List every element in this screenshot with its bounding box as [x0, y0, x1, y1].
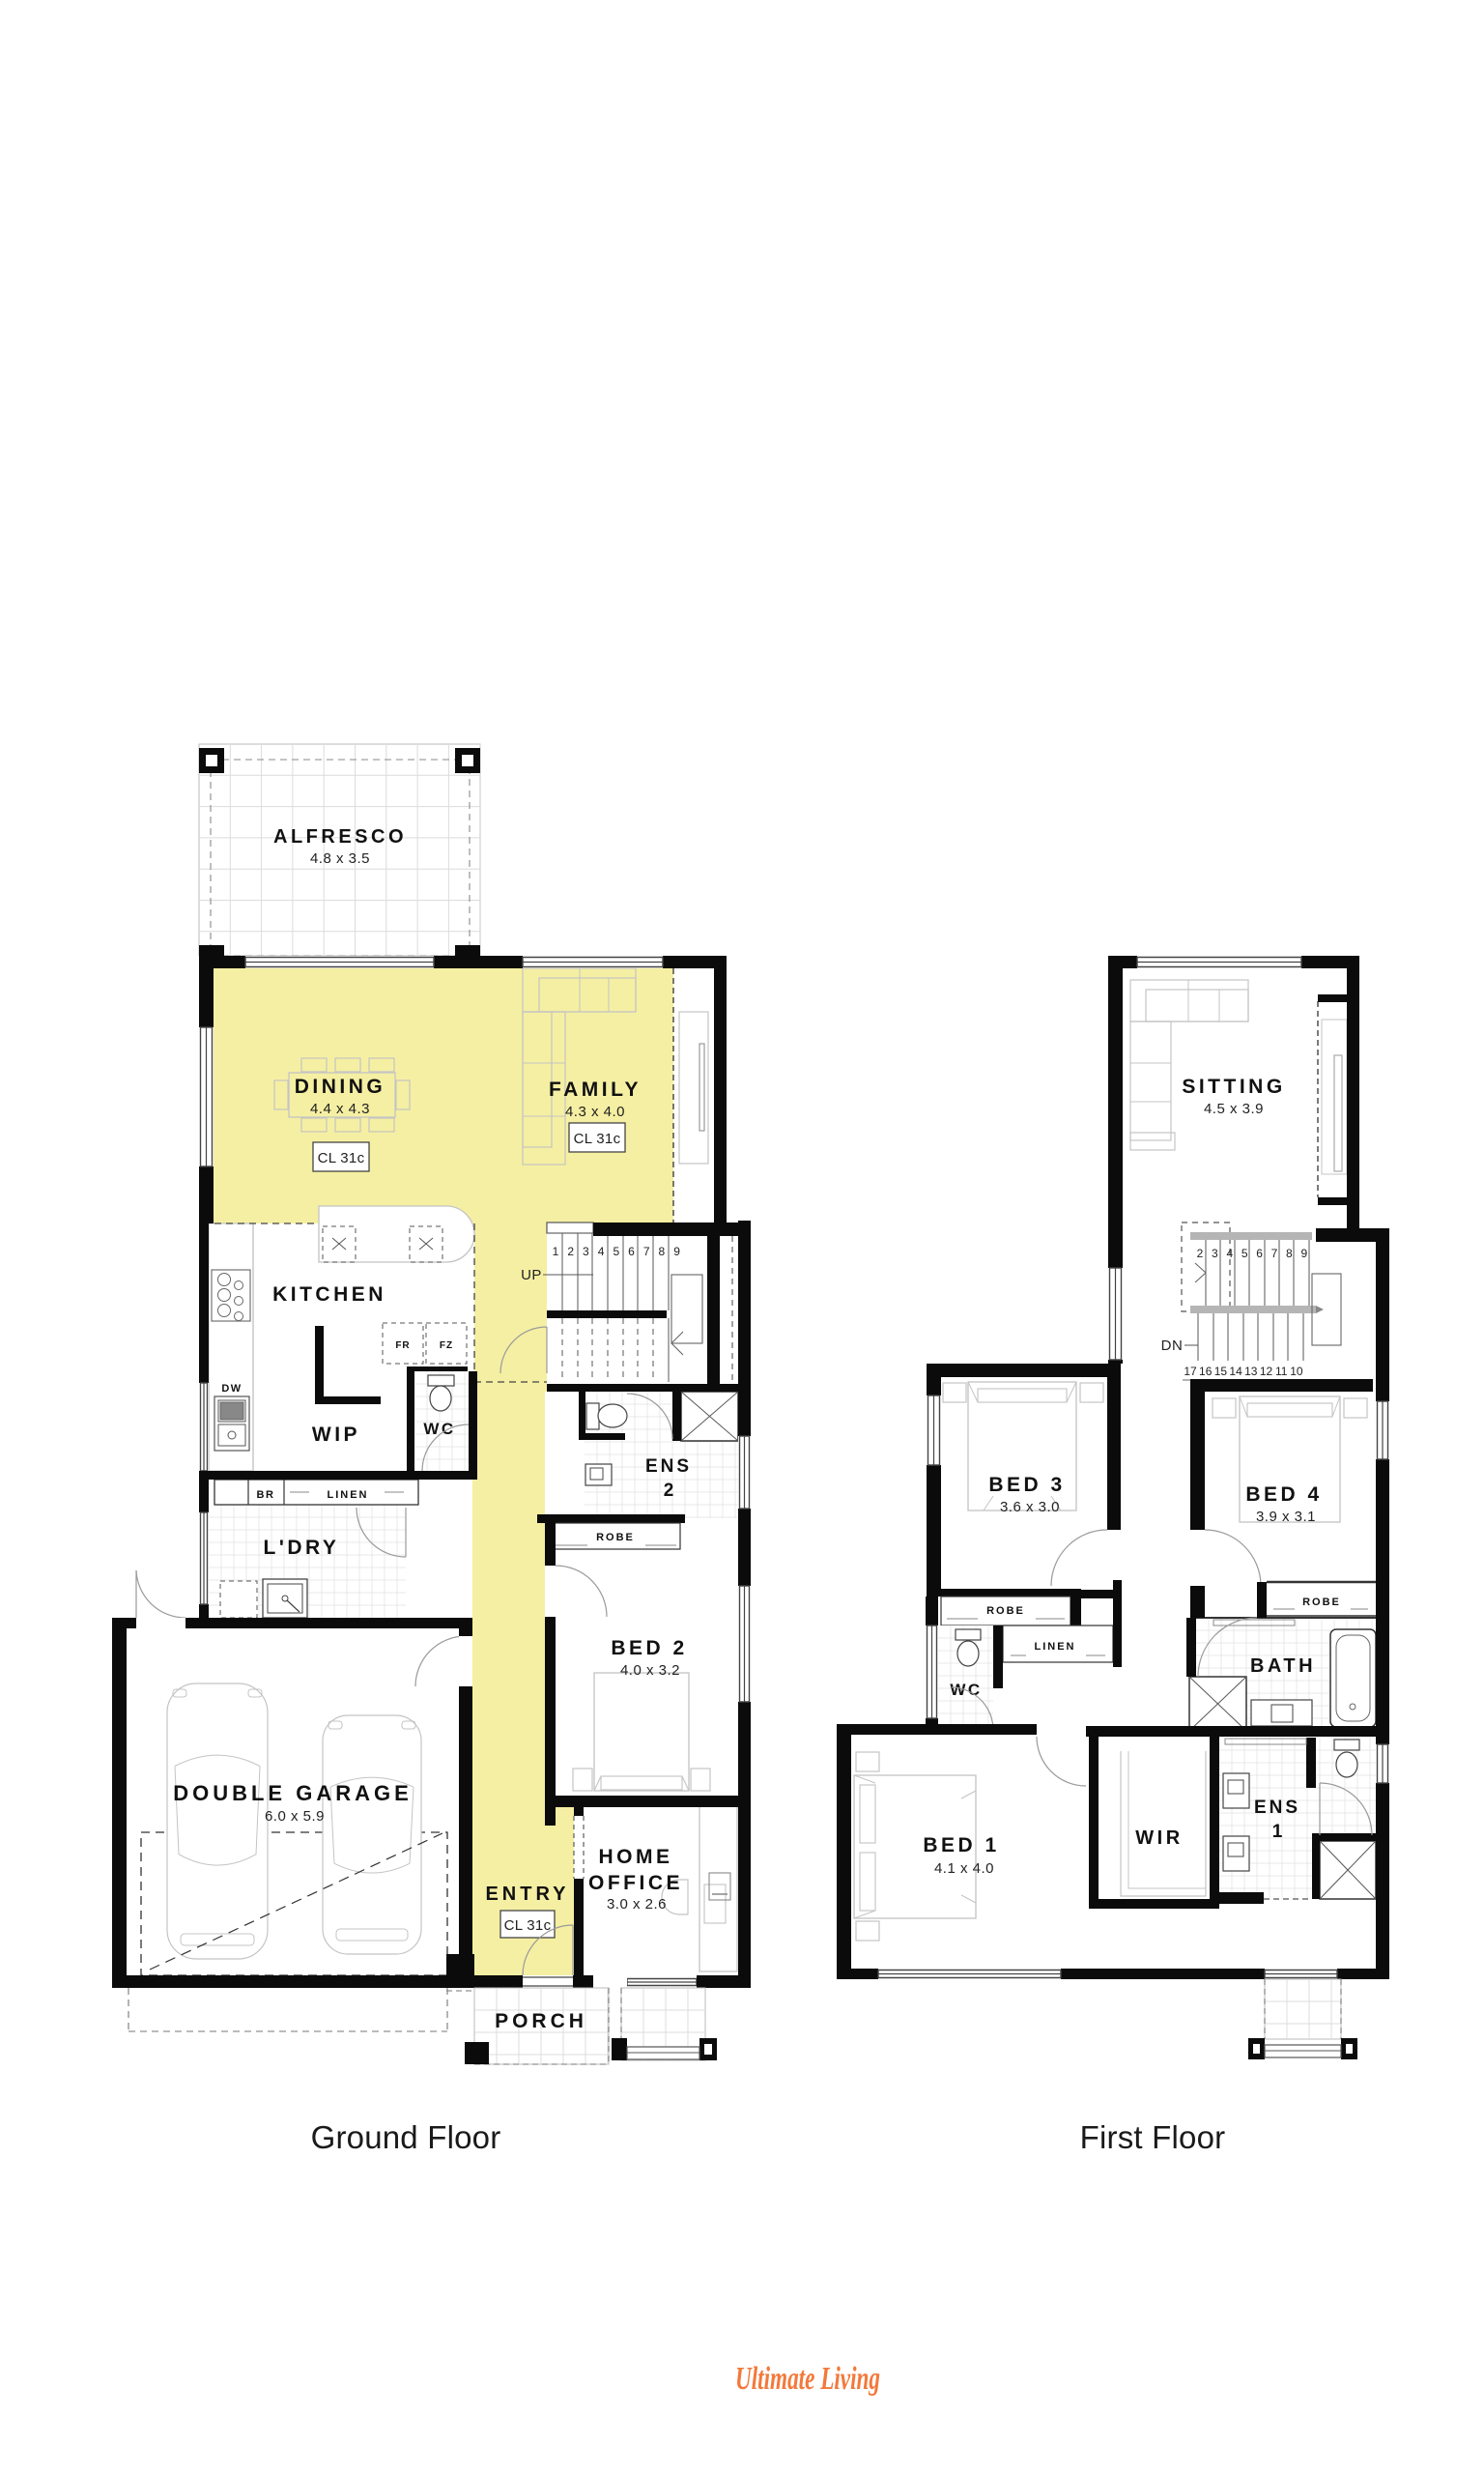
svg-text:ROBE: ROBE	[596, 1532, 635, 1543]
svg-text:BATH: BATH	[1250, 1655, 1316, 1677]
svg-text:17: 17	[1184, 1365, 1197, 1378]
svg-text:12: 12	[1260, 1365, 1273, 1378]
svg-text:3.6 x 3.0: 3.6 x 3.0	[1000, 1499, 1060, 1515]
svg-text:SITTING: SITTING	[1182, 1076, 1285, 1098]
svg-text:FZ: FZ	[440, 1340, 453, 1351]
svg-text:7: 7	[1271, 1247, 1278, 1260]
svg-text:Ground Floor: Ground Floor	[311, 2119, 501, 2155]
svg-text:BR: BR	[257, 1489, 275, 1501]
svg-text:FAMILY: FAMILY	[549, 1079, 642, 1101]
svg-text:BED 2: BED 2	[611, 1637, 687, 1659]
svg-text:14: 14	[1229, 1365, 1242, 1378]
svg-text:LINEN: LINEN	[328, 1489, 369, 1501]
svg-text:4: 4	[598, 1245, 605, 1258]
svg-text:5: 5	[613, 1245, 619, 1258]
svg-text:8: 8	[1286, 1247, 1293, 1260]
svg-text:WIP: WIP	[312, 1424, 360, 1446]
svg-text:3: 3	[583, 1245, 589, 1258]
svg-text:1: 1	[553, 1245, 559, 1258]
svg-text:DINING: DINING	[295, 1076, 386, 1098]
svg-text:15: 15	[1214, 1365, 1228, 1378]
svg-text:ENS: ENS	[645, 1456, 692, 1477]
svg-text:10: 10	[1290, 1365, 1303, 1378]
svg-text:DW: DW	[221, 1383, 242, 1395]
svg-text:UP: UP	[521, 1267, 542, 1283]
svg-text:2: 2	[664, 1481, 674, 1501]
svg-text:9: 9	[1300, 1247, 1307, 1260]
svg-text:9: 9	[673, 1245, 680, 1258]
svg-text:FR: FR	[395, 1340, 410, 1351]
svg-text:DOUBLE GARAGE: DOUBLE GARAGE	[173, 1781, 413, 1805]
svg-text:BED 3: BED 3	[988, 1474, 1065, 1496]
svg-text:ENS: ENS	[1254, 1798, 1300, 1818]
svg-text:6: 6	[628, 1245, 635, 1258]
svg-text:ALFRESCO: ALFRESCO	[273, 826, 407, 848]
svg-text:3.9 x 3.1: 3.9 x 3.1	[1256, 1509, 1316, 1525]
svg-text:CL 31c: CL 31c	[504, 1917, 552, 1934]
svg-text:ENTRY: ENTRY	[485, 1884, 569, 1905]
svg-text:2: 2	[1197, 1247, 1204, 1260]
svg-text:KITCHEN: KITCHEN	[272, 1283, 386, 1306]
svg-text:First Floor: First Floor	[1080, 2119, 1226, 2155]
svg-text:4: 4	[1226, 1247, 1233, 1260]
svg-text:CL 31c: CL 31c	[574, 1131, 621, 1147]
svg-text:13: 13	[1244, 1365, 1258, 1378]
svg-text:CL 31c: CL 31c	[318, 1150, 365, 1166]
svg-text:OFFICE: OFFICE	[588, 1872, 683, 1894]
svg-text:8: 8	[659, 1245, 666, 1258]
svg-text:4.0 x 3.2: 4.0 x 3.2	[620, 1662, 680, 1679]
svg-text:5: 5	[1241, 1247, 1248, 1260]
svg-text:4.5 x 3.9: 4.5 x 3.9	[1204, 1101, 1264, 1117]
svg-text:BED 1: BED 1	[923, 1834, 999, 1856]
svg-text:4.8 x 3.5: 4.8 x 3.5	[310, 850, 370, 867]
svg-text:6.0 x 5.9: 6.0 x 5.9	[265, 1808, 325, 1825]
svg-text:L'DRY: L'DRY	[264, 1537, 340, 1559]
svg-text:16: 16	[1199, 1365, 1213, 1378]
svg-text:LINEN: LINEN	[1035, 1641, 1076, 1653]
svg-text:6: 6	[1256, 1247, 1263, 1260]
svg-text:BED 4: BED 4	[1245, 1483, 1322, 1506]
svg-text:2: 2	[567, 1245, 574, 1258]
svg-text:4.4 x 4.3: 4.4 x 4.3	[310, 1101, 370, 1117]
svg-text:4.3 x 4.0: 4.3 x 4.0	[565, 1104, 625, 1120]
svg-text:WIR: WIR	[1135, 1827, 1183, 1849]
svg-text:3: 3	[1212, 1247, 1218, 1260]
svg-text:11: 11	[1275, 1365, 1288, 1378]
svg-text:7: 7	[643, 1245, 650, 1258]
svg-text:1: 1	[1272, 1822, 1283, 1842]
svg-text:3.0 x 2.6: 3.0 x 2.6	[607, 1896, 667, 1913]
svg-text:4.1 x 4.0: 4.1 x 4.0	[934, 1860, 994, 1877]
svg-text:DN: DN	[1161, 1338, 1184, 1354]
svg-text:ROBE: ROBE	[986, 1605, 1025, 1617]
svg-text:HOME: HOME	[599, 1846, 673, 1868]
svg-text:ROBE: ROBE	[1302, 1597, 1341, 1608]
svg-text:PORCH: PORCH	[495, 2010, 587, 2032]
svg-text:Ultimate Living: Ultimate Living	[735, 2361, 880, 2397]
